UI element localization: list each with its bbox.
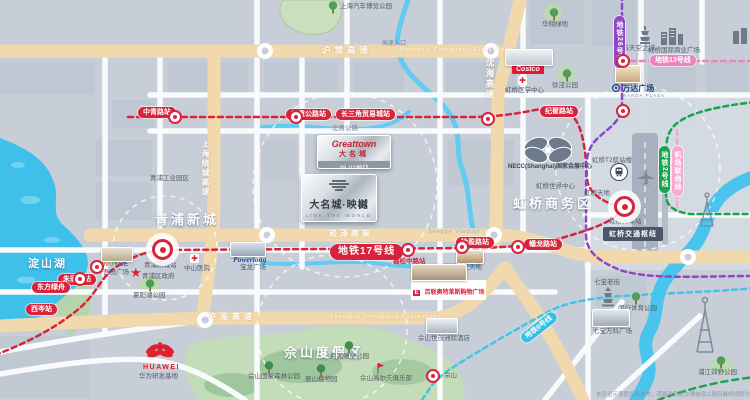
poi-label-huawei-rd-base: 华为研发基地 <box>139 373 178 380</box>
wanda-en: WANDA PLAZA <box>622 93 665 98</box>
station-target-qingpu-xincheng <box>152 239 173 260</box>
poi-label-qingpu-industrial-park: 青浦工业园区 <box>150 175 189 182</box>
road-label-huyu-en: Shanghai Chongqing Expressway <box>330 314 442 320</box>
poi-label-chenshan-garden: 辰山植物园 <box>305 376 338 383</box>
road-label-ring-expwy: 上海绕城高速 <box>200 140 211 197</box>
wuyue-building <box>101 247 133 262</box>
poi-label-yuehu-park: 月湖雕塑公园 <box>330 353 369 360</box>
tree-icon <box>549 8 559 21</box>
poi-label-powerlong-plaza: 宝龙广场 <box>240 264 266 271</box>
area-label-qingpu: 青浦新城 <box>155 209 219 228</box>
costco-logo: Costco <box>512 65 544 74</box>
station-pill-xicen: 西岑站 <box>26 304 57 315</box>
tree-icon <box>562 69 572 82</box>
station-pill-dongfanglvzhou: 东方绿舟 <box>32 282 70 293</box>
station-target <box>401 243 415 257</box>
station-target <box>168 110 182 124</box>
poi-label-hongqiao-intl-plaza: 虹桥国际商业广场 <box>648 47 700 54</box>
tree-icon <box>716 356 726 369</box>
railway-station-icon <box>610 163 628 181</box>
outlets-banner: E 百联奥特莱斯购物广场 <box>411 280 486 300</box>
hospital-cross-icon: ✚ <box>518 76 527 85</box>
road-label-huchang-en: Shanghai Changzhou Expressway <box>400 47 513 53</box>
powerlong-building <box>230 242 266 257</box>
road-label-shenhai-expwy: 沈海高速 <box>484 58 496 100</box>
area-label-dianshan-lake: 淀山湖 <box>28 255 67 271</box>
building-icon <box>732 28 748 44</box>
project-tagline: LINK THE WORLD <box>302 213 376 218</box>
sky-city-pagoda-icon <box>638 26 652 44</box>
huawei-logo-icon <box>144 341 176 363</box>
huawei-wordmark: HUAWEI <box>143 364 180 371</box>
poi-label-sheshan-golf: 佘山高尔夫俱乐部 <box>360 375 412 382</box>
tree-icon <box>145 279 155 292</box>
golf-flag-icon <box>374 362 385 375</box>
map-disclaimer: 本区位示意图仅供参考，道路及轨道交通信息以政府最终规划为准 <box>596 390 750 398</box>
hongqiao-hub-badge: 虹桥交通枢纽 <box>603 227 663 241</box>
poi-label-qibao-old-street: 七宝老街 <box>594 279 620 286</box>
wanda-emblem-icon <box>612 84 620 92</box>
poi-label-shimao-hotel: 佘山世茂洲际酒店 <box>418 335 470 342</box>
tv-tower-icon <box>694 296 716 354</box>
tree-icon <box>631 292 641 305</box>
road-label-songze-en: Songze Viaduct <box>428 229 480 235</box>
station-target <box>289 110 303 124</box>
station-pill-jizhai-rd: 纪翟路站 <box>540 106 578 117</box>
necc-label: NECC(Shanghai)国家会展中心 <box>508 164 592 171</box>
station-pill-changsanjiao: 长三角贸易城站 <box>336 109 395 120</box>
project-name: 大名城·映樾 <box>302 196 376 211</box>
costco-building <box>505 49 553 66</box>
metro-2-pill: 地铁2号线 <box>659 146 670 193</box>
station-target-sheshan <box>426 369 440 383</box>
airport-link-pill: 机场联络线 <box>672 146 683 196</box>
station-target <box>511 240 525 254</box>
station-target-hongqiao-railway <box>614 196 635 217</box>
government-star-icon: ★ <box>130 266 142 279</box>
shimao-hotel-building <box>426 318 458 334</box>
location-map: 青浦新城 虹桥商务区 佘山度假区 淀山湖 沪常高速 Shanghai Chang… <box>0 0 750 400</box>
necc-clover-building <box>518 136 578 163</box>
road-label-beiqing-rd: 北青公路 <box>332 125 358 132</box>
poi-label-sheshan-station: 佘山 <box>444 372 457 379</box>
airplane-icon <box>636 167 656 187</box>
station-target <box>455 240 469 254</box>
poi-label-hongqiao-world-center: 虹桥世界中心 <box>536 183 575 190</box>
tree-icon <box>328 1 338 14</box>
road-label-huyu-expwy: 沪渝高速 <box>208 311 256 322</box>
poi-label-huaxiang-green: 华翔绿地 <box>542 21 568 28</box>
project-plot-plaque: Greattown 大名城 38-01地块 <box>317 135 391 169</box>
station-pill-panlong-rd: 蟠龙路站 <box>524 239 562 250</box>
poi-label-auto-expo-park: 上海汽车博览公园 <box>340 3 392 10</box>
label-expressway-entrance: 高速入口 <box>382 41 406 48</box>
cbd-towers-icon <box>660 28 686 45</box>
station-target <box>616 54 630 68</box>
poi-label-wuyue-plaza: 吾悦广场 <box>103 269 129 276</box>
project-mark-icon <box>326 179 352 191</box>
road-label-songze-viaduct: 崧泽高架 <box>329 228 373 239</box>
pagoda-icon <box>600 287 616 307</box>
wuyue-logo: WUYUE <box>102 261 128 268</box>
metro-13-pill: 地铁13号线 <box>650 55 696 66</box>
hospital-cross-icon: ✚ <box>190 254 199 263</box>
poi-label-zhongshan-hospital: 中山医院 <box>184 265 210 272</box>
poi-label-pujiang-country-park: 浦江郊野公园 <box>698 369 737 376</box>
wanda-name: 万达广场 <box>622 84 654 93</box>
area-label-hongqiao: 虹桥商务区 <box>513 193 593 212</box>
plot-number: 38-01地块 <box>318 161 390 169</box>
station-target <box>481 112 495 126</box>
road-label-huchang-expwy: 沪常高速 <box>322 44 372 56</box>
poi-label-hongqiao-medical: 虹桥医学中心 <box>505 87 544 94</box>
project-logo-plaque: 大名城·映樾 LINK THE WORLD <box>301 174 377 222</box>
poi-label-sheshan-forest-park: 佘山国家森林公园 <box>248 373 300 380</box>
outlets-mark: E <box>413 290 420 296</box>
brand-en: Greattown <box>318 139 390 149</box>
brand-cn: 大名城 <box>318 149 390 159</box>
poi-label-hongqiao-tiandi: 虹桥天地 <box>584 190 610 197</box>
poi-label-t2-terminal: 虹桥T2航站楼 <box>592 157 632 164</box>
radio-tower-icon <box>698 192 716 228</box>
outlets-label: 百联奥特莱斯购物广场 <box>424 290 484 296</box>
qibao-vanke-building <box>592 309 630 327</box>
poi-label-qingpu-station: 青浦新城站 <box>144 262 177 269</box>
poi-label-qibao-vanke: 七宝万科广场 <box>593 328 632 335</box>
station-target <box>90 260 104 274</box>
station-target <box>616 104 630 118</box>
outlets-photo <box>411 264 467 281</box>
station-target <box>73 272 87 286</box>
poi-label-xiayanghu-park: 夏阳湖公园 <box>133 292 166 299</box>
poi-label-xujing-park: 徐泾公园 <box>552 82 578 89</box>
poi-label-hongqiao-railway: 虹桥火车站 <box>609 218 642 225</box>
